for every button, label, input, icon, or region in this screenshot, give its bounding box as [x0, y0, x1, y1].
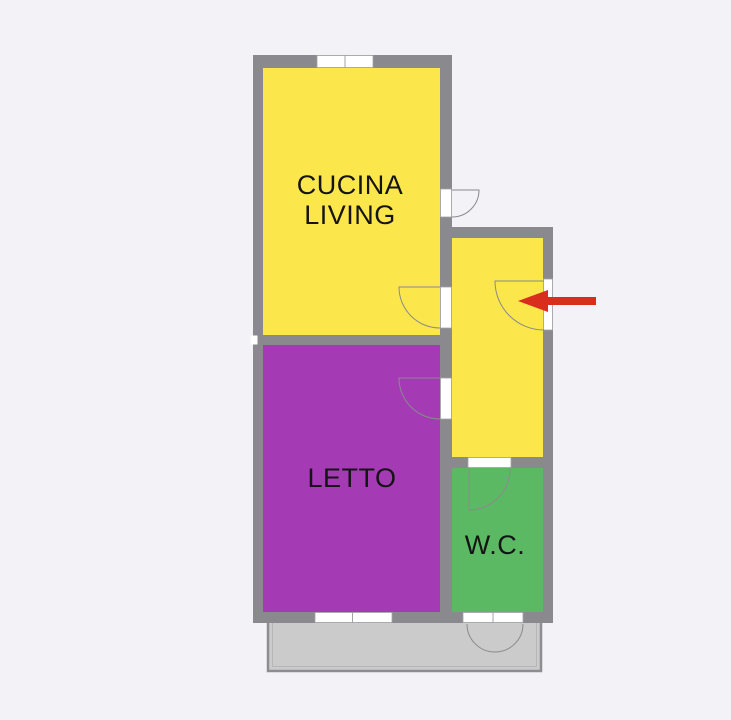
- wall-hallway-north: [440, 227, 553, 238]
- door-opening-kitchen-hallway: [441, 287, 452, 328]
- window-bedroom-south: [315, 613, 392, 623]
- label-kitchen-line1: CUCINA: [297, 170, 404, 200]
- door-opening-wc-hallway: [468, 458, 511, 468]
- label-wc: W.C.: [465, 530, 526, 560]
- wall-center-vertical: [440, 55, 452, 623]
- balcony-group: [268, 615, 541, 671]
- room-hallway: [452, 238, 543, 458]
- label-bedroom: LETTO: [307, 463, 396, 493]
- label-kitchen-line2: LIVING: [304, 200, 396, 230]
- door-opening-kitchen-exterior: [441, 189, 452, 217]
- balcony: [268, 615, 541, 671]
- door-opening-bedroom-hallway: [441, 378, 452, 419]
- wall-west-notch: [251, 336, 258, 345]
- floorplan: CUCINA LIVING LETTO W.C.: [0, 0, 731, 720]
- wall-kitchen-bedroom-divider: [263, 335, 440, 345]
